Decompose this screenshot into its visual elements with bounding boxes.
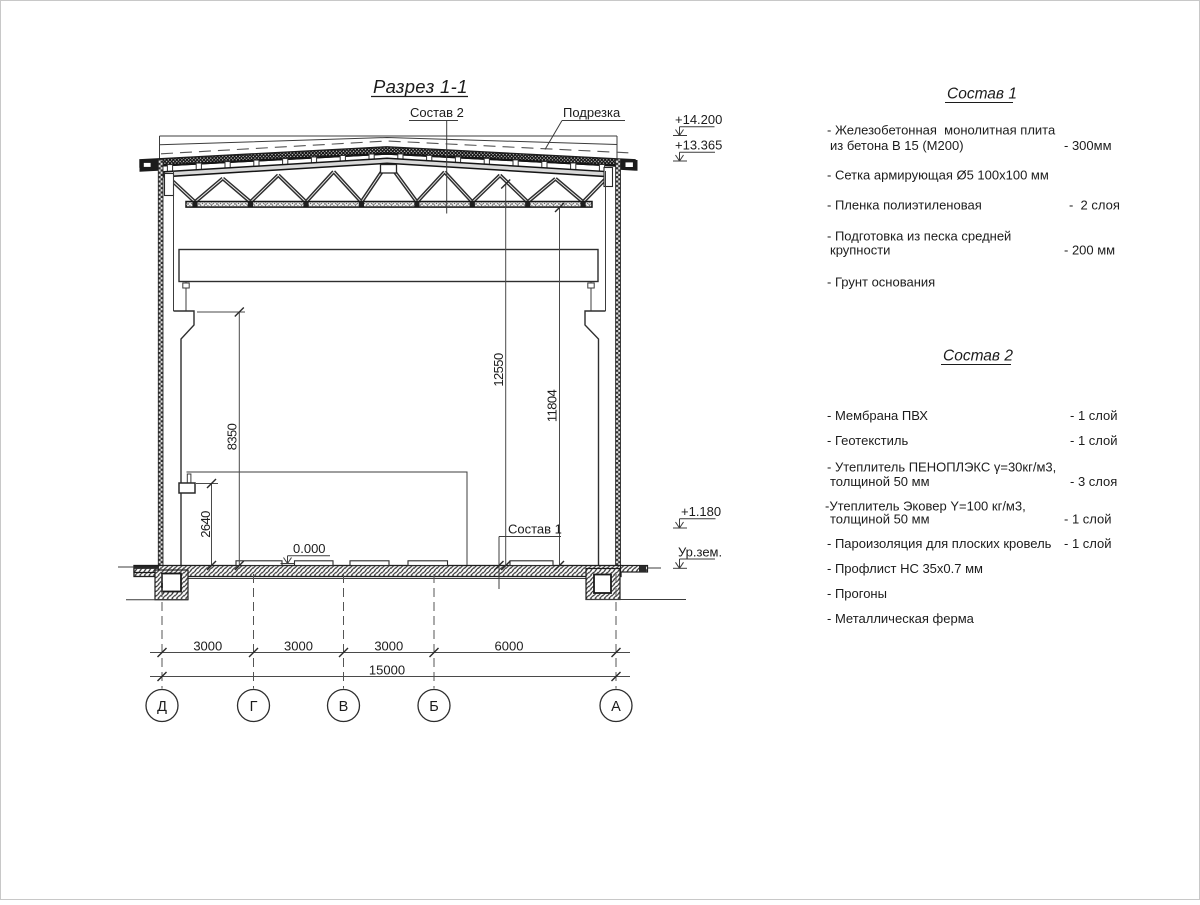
svg-text:- Грунт основания: - Грунт основания [827, 275, 935, 290]
svg-text:- 1 слой: - 1 слой [1070, 408, 1118, 423]
svg-text:крупности: крупности [830, 243, 890, 258]
svg-text:толщиной 50 мм: толщиной 50 мм [830, 474, 930, 489]
svg-text:Подрезка: Подрезка [563, 105, 621, 120]
svg-text:- Мембрана ПВХ: - Мембрана ПВХ [827, 408, 928, 423]
svg-text:- Геотекстиль: - Геотекстиль [827, 433, 908, 448]
svg-text:Разрез 1-1: Разрез 1-1 [373, 76, 468, 97]
svg-text:3000: 3000 [193, 639, 222, 654]
svg-text:Состав 1: Состав 1 [947, 86, 1017, 103]
svg-text:Г: Г [250, 699, 258, 715]
svg-text:2640: 2640 [198, 511, 213, 538]
svg-text:- 300мм: - 300мм [1064, 138, 1112, 153]
svg-text:- Подготовка из песка средней: - Подготовка из песка средней [827, 229, 1011, 244]
svg-text:- Пленка полиэтиленовая: - Пленка полиэтиленовая [827, 198, 982, 213]
svg-text:А: А [611, 699, 621, 715]
svg-text:- 3 слоя: - 3 слоя [1070, 474, 1117, 489]
svg-text:Состав 2: Состав 2 [410, 105, 464, 120]
svg-text:15000: 15000 [369, 663, 405, 678]
svg-text:- 2 слоя: - 2 слоя [1069, 198, 1120, 213]
svg-text:0.000: 0.000 [293, 541, 326, 556]
svg-text:Б: Б [429, 699, 439, 715]
svg-text:+14.200: +14.200 [675, 112, 722, 127]
svg-text:Д: Д [157, 699, 167, 715]
svg-text:- 1 слой: - 1 слой [1064, 512, 1112, 527]
svg-text:11804: 11804 [545, 390, 560, 423]
svg-text:Ур.зем.: Ур.зем. [678, 545, 722, 560]
svg-text:толщиной 50 мм: толщиной 50 мм [830, 512, 930, 527]
svg-text:- Профлист НС 35х0.7 мм: - Профлист НС 35х0.7 мм [827, 561, 983, 576]
svg-text:- Пароизоляция для плоских кро: - Пароизоляция для плоских кровель [827, 536, 1052, 551]
svg-text:6000: 6000 [495, 639, 524, 654]
svg-text:- 1 слой: - 1 слой [1070, 433, 1118, 448]
svg-text:+13.365: +13.365 [675, 138, 722, 153]
svg-text:- Металлическая ферма: - Металлическая ферма [827, 611, 975, 626]
svg-text:3000: 3000 [284, 639, 313, 654]
svg-text:- Сетка армирующая Ø5 100х100: - Сетка армирующая Ø5 100х100 мм [827, 168, 1049, 183]
svg-text:Состав 1: Состав 1 [508, 522, 562, 537]
svg-text:3000: 3000 [374, 639, 403, 654]
svg-text:- Железобетонная монолитная п: - Железобетонная монолитная плита [827, 123, 1056, 138]
svg-text:12550: 12550 [491, 353, 506, 387]
svg-text:В: В [339, 699, 349, 715]
svg-text:Состав 2: Состав 2 [943, 348, 1013, 365]
svg-text:из бетона В 15 (М200): из бетона В 15 (М200) [830, 138, 964, 153]
svg-text:- 200 мм: - 200 мм [1064, 243, 1115, 258]
svg-text:- 1 слой: - 1 слой [1064, 536, 1112, 551]
svg-text:8350: 8350 [225, 423, 240, 450]
svg-text:- Прогоны: - Прогоны [827, 586, 887, 601]
svg-text:- Утеплитель ПЕНОПЛЭКС γ=30кг/: - Утеплитель ПЕНОПЛЭКС γ=30кг/м3, [827, 460, 1056, 475]
svg-text:+1.180: +1.180 [681, 504, 721, 519]
